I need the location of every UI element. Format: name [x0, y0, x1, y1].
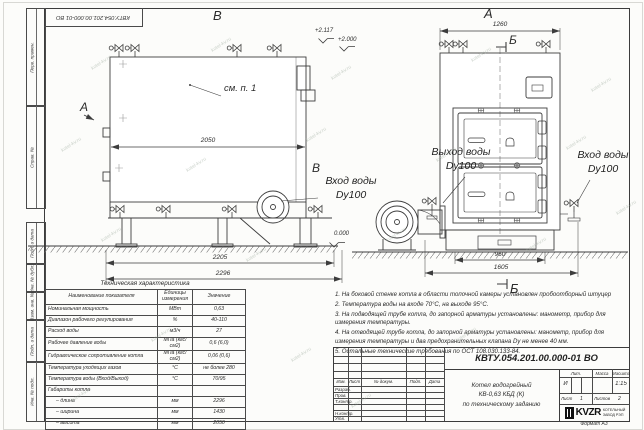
tb-col-ndok: № докум.: [361, 379, 406, 384]
product-line2: КВ-0,63 КБД (К): [479, 390, 525, 399]
dim-2296: 2296: [203, 270, 243, 277]
product-line3: по техническому заданию: [463, 400, 541, 409]
tb-row-tkontr: Т.контр.: [335, 399, 361, 404]
tech-row-name: Гидравлическое сопротивление котла: [46, 350, 158, 363]
note-4: 4. На отводящей трубе котла, до запорной…: [335, 329, 631, 347]
tech-row-units: мм: [158, 407, 193, 418]
tb-mass-label: Масса: [592, 371, 612, 376]
tech-row-name: Температура уходящих газов: [46, 363, 158, 374]
note-1: 1. На боковой стенке котла в области топ…: [335, 291, 631, 300]
tb-sheets-label: Листов: [594, 396, 614, 401]
tech-row-name: Номинальная мощность: [46, 305, 158, 316]
water-inlet-size: Dy100: [562, 163, 644, 177]
tech-row-name: – ширина: [46, 407, 158, 418]
elevation-2117: +2.117: [315, 28, 333, 34]
tech-row-value: 0,06 (0,6): [193, 350, 246, 363]
dim-960: 960: [485, 251, 515, 258]
product-line1: Котел водогрейный: [472, 381, 532, 390]
elevation-0000: 0.000: [334, 231, 349, 237]
tb-lit-label: Лит.: [560, 371, 592, 376]
logo-sub2: ЗАВОД РЭП: [603, 413, 626, 417]
doc-number-cell: КВТУ.054.201.00.000-01 ВО: [444, 348, 629, 370]
tech-row-name: – длина: [46, 396, 158, 407]
tb-row-utv: Утв.: [335, 416, 361, 421]
title-block: Изм. Лист № докум. Подп. Дата Разраб. Пр…: [333, 347, 630, 422]
tech-col-value: Значение: [193, 290, 246, 305]
tech-row-value: 1430: [193, 407, 246, 418]
dim-1605: 1605: [481, 264, 521, 271]
note-3: 3. На подводящей трубе котла, до запорно…: [335, 311, 631, 329]
tb-sheet-value: 1: [580, 396, 590, 402]
tb-row-prov: Пров.: [335, 393, 361, 398]
tech-row-value: 2050: [193, 418, 246, 429]
tech-row-name: Диапазон рабочего регулирования: [46, 316, 158, 327]
water-inlet-text: Вход воды: [562, 149, 644, 163]
tech-row-units: МВт: [158, 305, 193, 316]
tb-col-data: Дата: [425, 379, 444, 384]
dim-1260: 1260: [480, 21, 520, 28]
tech-row-name: Расход воды: [46, 327, 158, 338]
tb-scale-label: Масштаб: [612, 371, 630, 376]
drawing-sheet: { "watermark": {"text": "kotel-kv.ru"}, …: [0, 0, 644, 430]
water-outlet-label: Выход воды Dy100: [420, 146, 502, 173]
section-label-a: А: [80, 100, 88, 114]
elevation-2000: +2.000: [338, 37, 357, 43]
water-inlet-label-right: Вход воды Dy100: [562, 149, 644, 176]
water-outlet-size: Dy100: [420, 160, 502, 174]
tb-sheet-label: Лист: [561, 396, 577, 401]
tech-row-value: 0,6 (6,0): [193, 338, 246, 351]
dim-2050: 2050: [188, 137, 228, 144]
tech-row-units: °С: [158, 363, 193, 374]
tech-row-value: не более 280: [193, 363, 246, 374]
tech-row-units: МПа (кгс/см2): [158, 350, 193, 363]
tech-row-units: мм: [158, 396, 193, 407]
tb-row-razrab: Разраб.: [335, 387, 361, 392]
tb-col-podp: Подп.: [406, 379, 425, 384]
tech-row-value: 27: [193, 327, 246, 338]
logo-text: KVZR: [576, 407, 601, 418]
view-label-a: А: [484, 6, 493, 21]
product-name-cell: Котел водогрейный КВ-0,63 КБД (К) по тех…: [444, 369, 559, 421]
tech-row-name: Габариты котла: [46, 385, 158, 396]
tb-scale-value: 1:15: [612, 381, 630, 387]
tb-col-list: Лист: [348, 379, 361, 384]
tech-row-units: м3/ч: [158, 327, 193, 338]
top-stamp-box: КВТУ.054.201.00.000-01 ВО: [44, 8, 143, 27]
section-label-b-top: Б: [509, 33, 517, 47]
tech-col-units: Единицы измерения: [158, 290, 193, 305]
tech-row-value: [193, 385, 246, 396]
tech-row-value: 0,63: [193, 305, 246, 316]
tech-row-name: – высота: [46, 418, 158, 429]
view-label-b: В: [213, 8, 222, 23]
water-inlet-size: Dy100: [310, 189, 392, 203]
tb-col-izm: Изм.: [334, 379, 348, 384]
tech-row-units: [158, 385, 193, 396]
tech-row-value: 70/95: [193, 374, 246, 385]
side-label-b: В: [312, 161, 320, 175]
water-outlet-text: Выход воды: [420, 146, 502, 160]
tech-row-units: %: [158, 316, 193, 327]
callout-see-note: см. п. 1: [224, 83, 256, 94]
tb-sheets-value: 2: [618, 396, 628, 402]
tech-table-title: Техническая характеристика: [45, 280, 245, 287]
tech-row-name: Рабочее давление воды: [46, 338, 158, 351]
dim-2205: 2205: [200, 254, 240, 261]
format-label: Формат А3: [560, 421, 628, 427]
tech-row-name: Температура воды (Вход/Выход): [46, 374, 158, 385]
tech-row-units: МПа (кгс/см2): [158, 338, 193, 351]
kvzr-emblem-icon: [565, 407, 574, 419]
note-2: 2. Температура воды на входе 70°С, на вы…: [335, 301, 631, 310]
tech-row-value: 2296: [193, 396, 246, 407]
doc-number: КВТУ.054.201.00.000-01 ВО: [475, 353, 598, 364]
tech-col-name: Наименование показателя: [46, 290, 158, 305]
water-inlet-text: Вход воды: [310, 175, 392, 189]
tech-row-value: 40-110: [193, 316, 246, 327]
company-logo: KVZR КОТЕЛЬНЫЙ ЗАВОД РЭП: [560, 404, 630, 421]
tb-row-nkontr: Н.контр.: [335, 411, 361, 416]
tech-row-units: мм: [158, 418, 193, 429]
tech-row-units: °С: [158, 374, 193, 385]
top-stamp-text: КВТУ.054.201.00.000-01 ВО: [56, 14, 130, 20]
water-inlet-label-left: Вход воды Dy100: [310, 175, 392, 202]
tech-table: Наименование показателя Единицы измерени…: [45, 289, 246, 430]
tb-right-section: Лит. Масса Масштаб И 1:15 Лист 1 Листов …: [559, 369, 630, 421]
tb-lit-value: И: [560, 381, 571, 387]
